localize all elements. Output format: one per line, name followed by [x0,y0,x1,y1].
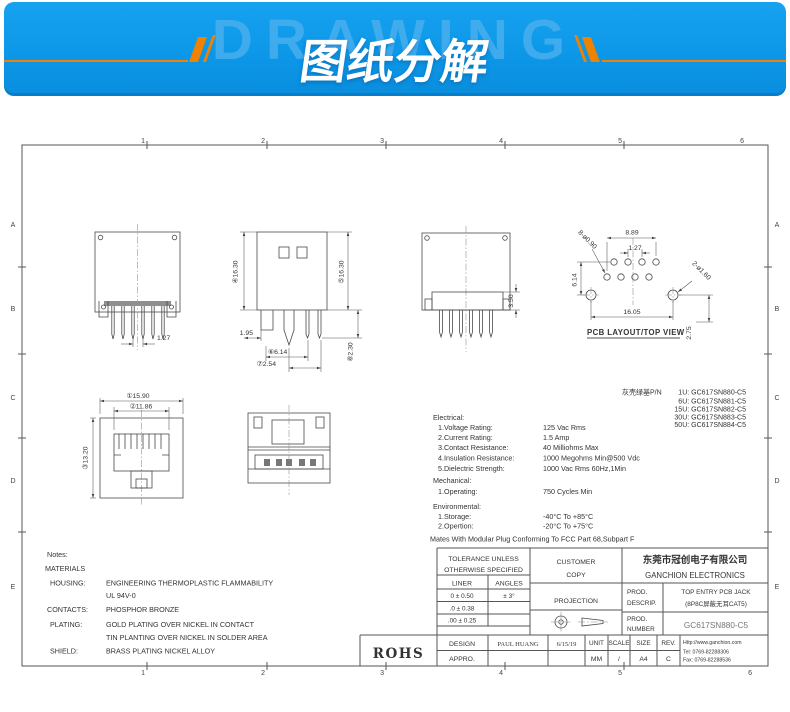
date-value: 6/15/19 [557,641,577,648]
grid-row-label: D [10,478,15,485]
spec-label: 5.Dielectric Strength: [438,464,505,473]
prod-number-label: PROD. [627,616,647,623]
tolerance-col-header: LINER [452,581,472,588]
grid-col-label: 5 [618,670,622,677]
dim-inner-width: ②11.86 [130,403,153,411]
unit-label: UNIT [589,640,604,647]
dim-height-right: ⑤16.30 [338,260,346,283]
dim-bottom-1: ⑥6.14 [268,348,288,356]
scale-value: / [618,656,620,663]
tolerance-cell: .0 ± 0.38 [450,606,475,613]
part-item: 6U: GC617SN881-C5 [678,399,746,406]
spec-label: 1.Voltage Rating: [438,423,493,432]
appro-label: APPRO. [449,656,475,663]
grid-col-label: 1 [141,138,145,145]
view-caption: PCB LAYOUT/TOP VIEW [587,328,685,337]
spec-section-title: Electrical: [433,413,464,422]
material-label: SHIELD: [50,647,78,656]
dim-height-left: ④16.30 [232,260,240,283]
dim-bottom-2: ⑦2.54 [257,360,277,368]
spec-label: 1.Storage: [438,512,471,521]
dim-hole-span: 8.89 [625,230,638,237]
grid-row-label: A [11,222,16,229]
grid-col-label: 3 [380,670,384,677]
tolerance-cell: .00 ± 0.25 [448,618,477,625]
spec-value: 40 Milliohms Max [543,443,599,452]
spec-value: 1000 Vac Rms 60Hz,1Min [543,464,626,473]
dim-offset: 2.75 [686,326,693,339]
company-name-en: GANCHION ELECTRONICS [645,571,745,580]
company-tel: Tel: 0769-82288306 [683,650,729,656]
spec-value: -40°C To +85°C [543,512,593,521]
dim-step: 3.50 [508,294,515,307]
dim-pin-pitch: 1.27 [157,335,170,342]
size-value: A4 [639,656,648,663]
tolerance-cell: ± 3° [503,592,515,600]
company-name-cn: 东莞市冠创电子有限公司 [643,554,748,566]
spec-value: 1.5 Amp [543,433,569,442]
customer-copy: CUSTOMER [557,559,596,566]
grid-col-label: 1 [141,670,145,677]
spec-section-title: Environmental: [433,502,481,511]
tolerance-header: TOLERANCE UNLESS [448,556,519,563]
material-label: HOUSING: [50,579,86,588]
material-value: ENGINEERING THERMOPLASTIC FLAMMABILITY [106,579,273,588]
grid-col-label: 4 [499,138,503,145]
title-block: TOLERANCE UNLESS OTHERWISE SPECIFIED LIN… [360,548,768,666]
dim-height: ③13.20 [82,446,90,469]
company-fax: Fax: 0769-82288536 [683,658,731,664]
engineering-drawing-sheet: 1 2 3 4 5 6 1 2 3 4 5 6 A B C D E A B C … [0,0,790,712]
part-list: 灰壳绿基P/N 1U: GC617SN880-C5 6U: GC617SN881… [622,388,746,430]
grid-row-label: C [774,395,779,402]
dim-outer-width: ①15.90 [126,392,149,400]
spec-block: Electrical: 1.Voltage Rating: 125 Vac Rm… [430,413,640,544]
spec-value: 750 Cycles Min [543,487,592,496]
dim-hole-pitch: 1.27 [628,245,641,252]
customer-copy: COPY [566,572,586,579]
view-rear: 3.50 [422,226,520,352]
prod-descrip-value: TOP ENTRY PCB JACK [681,589,751,596]
grid-row-label: D [774,478,779,485]
rev-value: C [666,656,671,663]
notes-title: Notes: [47,550,68,559]
part-item: 1U: GC617SN880-C5 [678,390,746,397]
scale-label: SCALE [609,640,630,647]
prod-descrip-value: (8P8C屏蔽无耳CAT5) [685,599,747,608]
view-pcb-layout: 8.89 1.27 8-ø0.90 6.14 2-ø1.60 16.05 2.7… [572,229,714,339]
view-jack-face: ①15.90 ②11.86 ③13.20 [82,392,184,505]
grid-row-label: E [775,584,780,591]
grid-col-label: 2 [261,670,265,677]
label-small-holes: 8-ø0.90 [576,229,598,251]
grid-col-label: 2 [261,138,265,145]
spec-value: 125 Vac Rms [543,423,586,432]
material-label: PLATING: [50,620,82,629]
company-web: Http://www.ganchion.com [683,640,742,646]
design-value: PAUL HUANG [497,641,539,648]
material-value: TIN PLANTING OVER NICKEL IN SOLDER AREA [106,633,268,642]
grid-col-label: 5 [618,138,622,145]
grid-row-label: E [11,584,16,591]
view-front-shielded: 1.27 [95,224,180,350]
grid-col-label: 6 [740,138,744,145]
dim-offset: 1.95 [240,330,253,337]
spec-label: 2.Current Rating: [438,433,493,442]
prod-descrip-label: DESCRIP. [627,600,657,607]
view-front-unshielded: ④16.30 1.95 ⑥6.14 ⑦2.54 ⑤16.30 ⑧2.30 [232,232,363,372]
grid-row-label: A [775,222,780,229]
dim-width: 16.05 [623,309,640,316]
size-label: SIZE [636,640,650,647]
grid-row-label: B [11,306,16,313]
material-value: GOLD PLATING OVER NICKEL IN CONTACT [106,620,255,629]
material-value: PHOSPHOR BRONZE [106,605,179,614]
spec-mates-note: Mates With Modular Plug Conforming To FC… [430,535,635,544]
dim-pin-length: ⑧2.30 [347,342,355,362]
grid-row-label: C [10,395,15,402]
rohs-mark: ROHS [373,646,424,662]
rev-label: REV. [661,640,676,647]
part-item: 15U: GC617SN882-C5 [674,407,746,414]
spec-label: 4.Insulation Resistance: [438,454,514,463]
label-big-holes: 2-ø1.60 [690,260,712,282]
dim-row-gap: 6.14 [572,273,579,286]
spec-label: 3.Contact Resistance: [438,443,508,452]
projection-label: PROJECTION [554,598,598,605]
grid-col-label: 4 [499,670,503,677]
grid-row-label: B [775,306,780,313]
material-label: CONTACTS: [47,605,88,614]
tolerance-header: OTHERWISE SPECIFIED [444,567,523,574]
part-item: 30U: GC617SN883-C5 [674,415,746,422]
tolerance-cell: 0 ± 0.50 [450,593,473,600]
first-angle-projection-icon [551,612,608,632]
view-bottom [248,405,330,495]
notes-block: Notes: MATERIALS HOUSING: ENGINEERING TH… [45,550,273,656]
design-label: DESIGN [449,641,475,648]
part-list-heading: 灰壳绿基P/N [622,388,662,397]
prod-number-label: NUMBER [627,626,655,633]
spec-value: 1000 Megohms Min@500 Vdc [543,454,640,463]
prod-number-value: GC617SN880-C5 [684,621,749,630]
spec-section-title: Mechanical: [433,476,471,485]
material-value: BRASS PLATING NICKEL ALLOY [106,647,215,656]
prod-descrip-label: PROD. [627,589,647,596]
spec-label: 2.Opertion: [438,522,474,531]
spec-value: -20°C To +75°C [543,522,593,531]
grid-col-label: 6 [748,670,752,677]
part-item: 50U: GC617SN884-C5 [674,422,746,429]
material-value: UL 94V-0 [106,591,136,600]
grid-col-label: 3 [380,138,384,145]
tolerance-col-header: ANGLES [495,581,523,588]
materials-title: MATERIALS [45,564,85,573]
unit-value: MM [591,656,603,663]
spec-label: 1.Operating: [438,487,478,496]
